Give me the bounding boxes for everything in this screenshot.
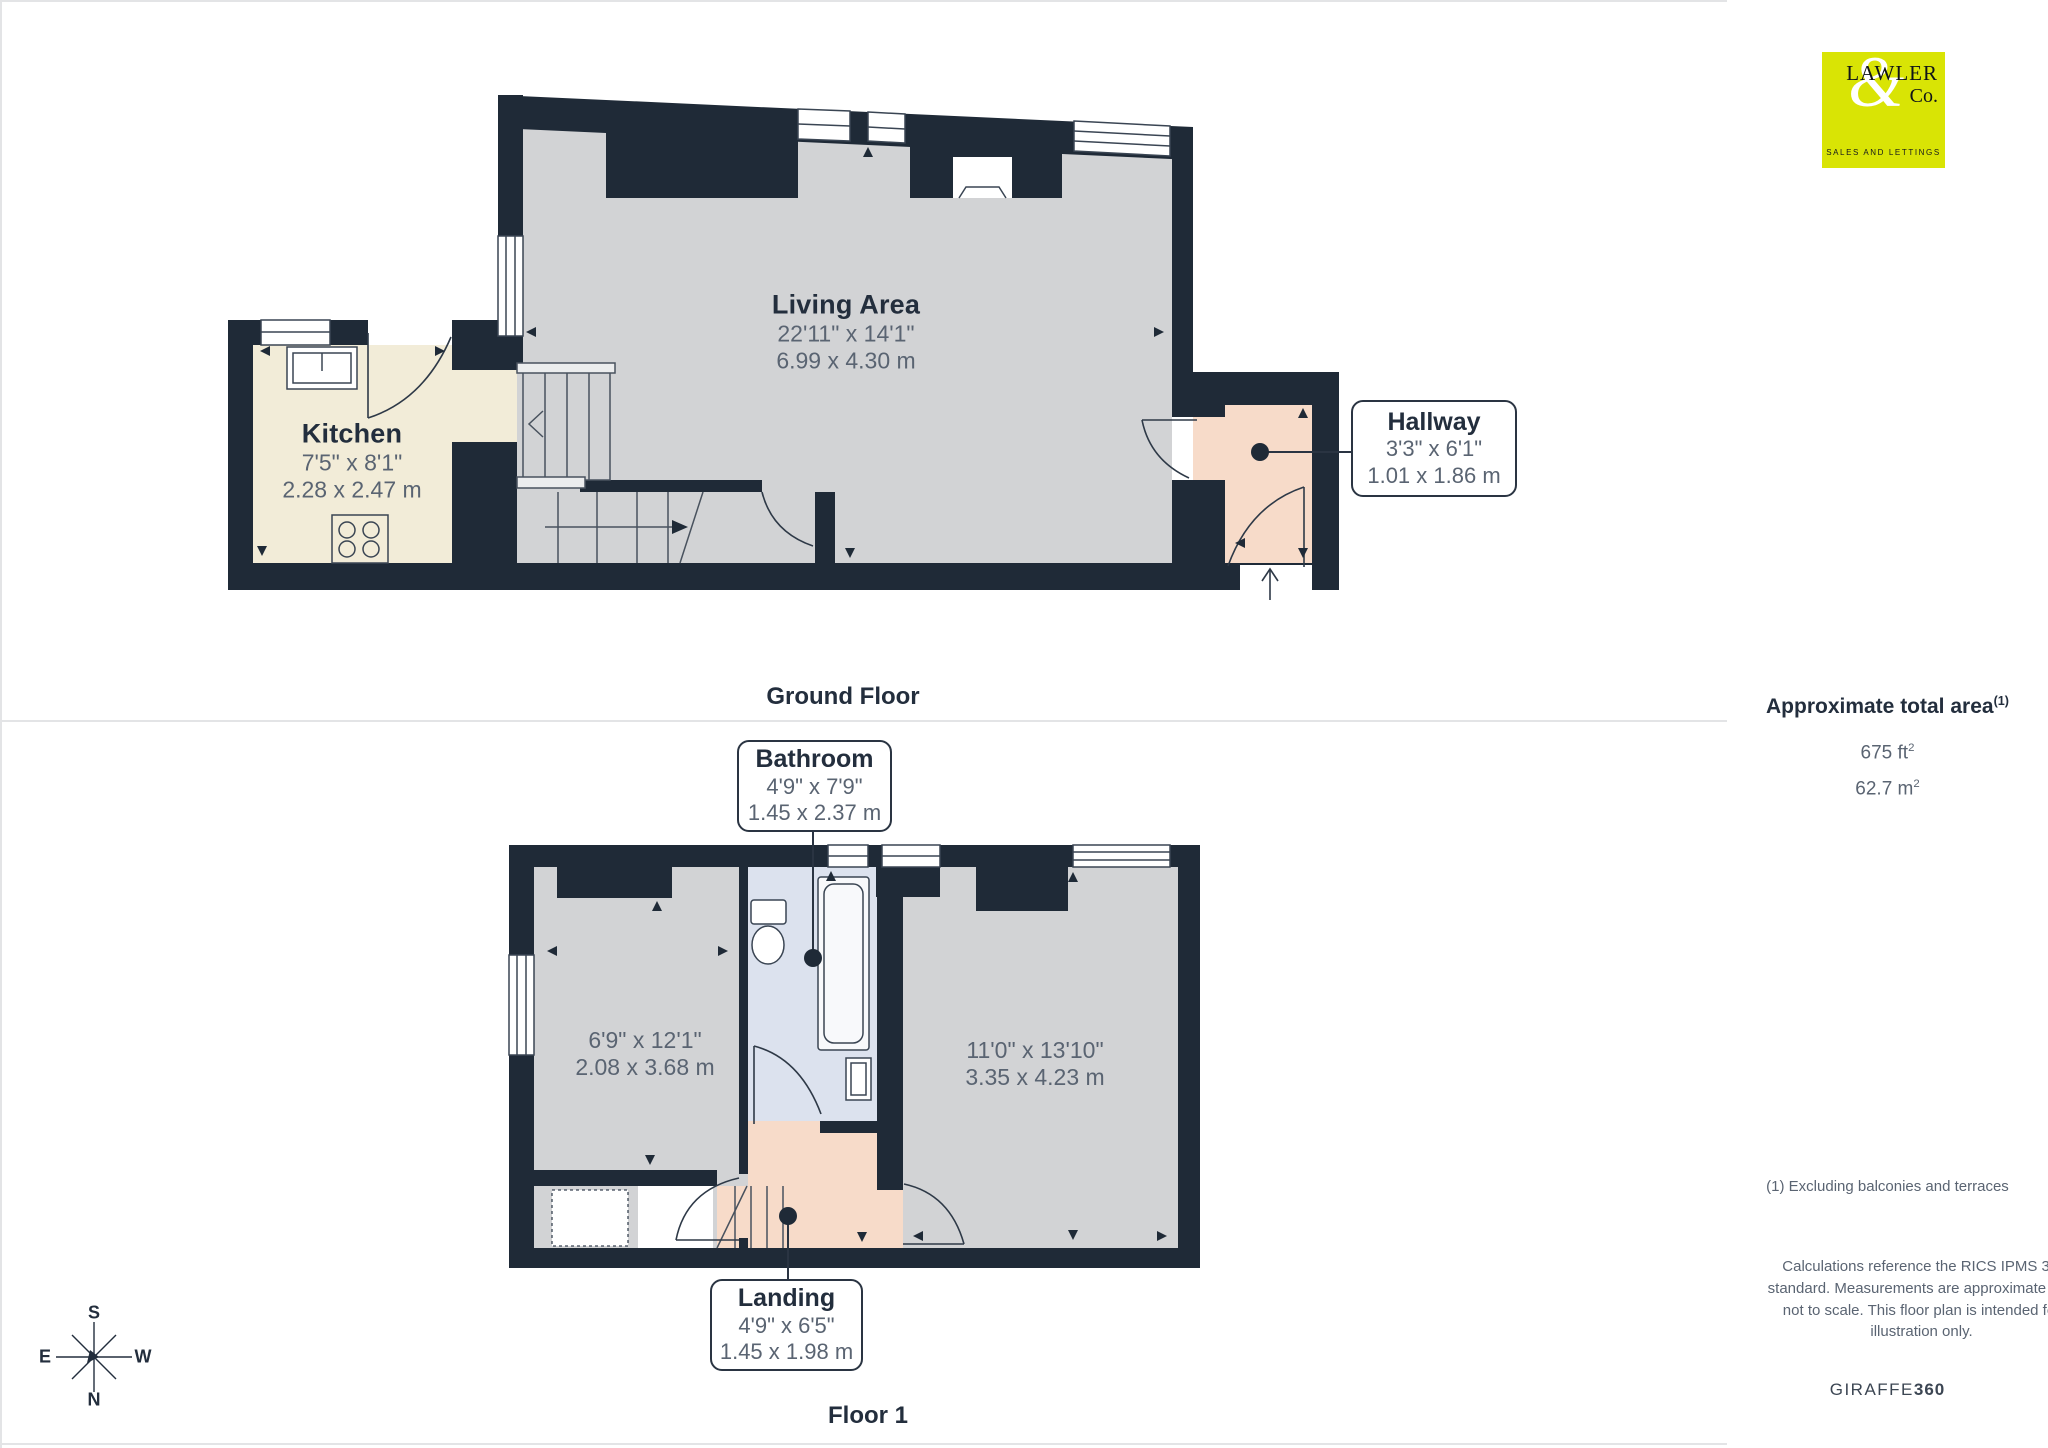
border-left — [0, 0, 2, 1448]
giraffe360-brand: GIRAFFE360 — [1727, 1380, 2048, 1400]
agency-logo: & LAWLER Co. SALES AND LETTINGS — [1822, 52, 1945, 168]
area-title-sup: (1) — [1994, 694, 2009, 708]
bedroom1-metric: 2.08 x 3.68 m — [575, 1054, 714, 1081]
divider-floors — [0, 720, 1727, 722]
sidebar: & LAWLER Co. SALES AND LETTINGS Approxim… — [1727, 0, 2048, 1448]
bathroom-title: Bathroom — [755, 745, 873, 774]
kitchen-sink-icon — [287, 347, 357, 389]
bathroom-callout: Bathroom 4'9" x 7'9" 1.45 x 2.37 m — [737, 740, 892, 832]
area-m: 62.7 m2 — [1727, 778, 2048, 800]
kitchen-label: Kitchen 7'5" x 8'1" 2.28 x 2.47 m — [282, 419, 421, 504]
ground-floor-caption: Ground Floor — [766, 683, 919, 711]
logo-tagline: SALES AND LETTINGS — [1822, 148, 1945, 157]
landing-imperial: 4'9" x 6'5" — [738, 1313, 834, 1339]
brand-regular: GIRAFFE — [1830, 1380, 1914, 1399]
disclaimer: Calculations reference the RICS IPMS 3C … — [1727, 1256, 2048, 1343]
kitchen-metric: 2.28 x 2.47 m — [282, 477, 421, 504]
bedroom2-label: 11'0" x 13'10" 3.35 x 4.23 m — [965, 1037, 1104, 1091]
compass-south: S — [88, 1303, 100, 1324]
area-footnote: (1) Excluding balconies and terraces — [1727, 1178, 2048, 1195]
compass-north: N — [88, 1390, 101, 1411]
landing-metric: 1.45 x 1.98 m — [720, 1339, 853, 1365]
area-ft: 675 ft2 — [1727, 742, 2048, 764]
landing-title: Landing — [738, 1284, 835, 1313]
area-m-value: 62.7 m — [1855, 778, 1913, 799]
bedroom2-imperial: 11'0" x 13'10" — [965, 1037, 1104, 1064]
kitchen-imperial: 7'5" x 8'1" — [282, 450, 421, 477]
fireplace-icon — [953, 157, 1012, 198]
floor1-caption: Floor 1 — [828, 1402, 908, 1430]
cupboard-icon — [552, 1190, 628, 1246]
living-area-label: Living Area 22'11" x 14'1" 6.99 x 4.30 m — [772, 290, 920, 375]
hallway-imperial: 3'3" x 6'1" — [1386, 436, 1482, 462]
area-ft-sup: 2 — [1908, 742, 1914, 754]
hallway-title: Hallway — [1387, 408, 1480, 437]
living-area-imperial: 22'11" x 14'1" — [772, 321, 920, 348]
logo-name: LAWLER — [1846, 61, 1938, 86]
floorplan-page: Living Area 22'11" x 14'1" 6.99 x 4.30 m… — [0, 0, 2048, 1448]
hallway-metric: 1.01 x 1.86 m — [1367, 463, 1500, 489]
compass-icon — [56, 1322, 132, 1392]
area-ft-value: 675 ft — [1861, 742, 1909, 763]
hallway-callout: Hallway 3'3" x 6'1" 1.01 x 1.86 m — [1351, 400, 1517, 497]
sink-icon — [846, 1058, 871, 1100]
area-m-sup: 2 — [1913, 778, 1919, 790]
living-area-metric: 6.99 x 4.30 m — [772, 348, 920, 375]
landing-callout: Landing 4'9" x 6'5" 1.45 x 1.98 m — [710, 1279, 863, 1371]
bathroom-imperial: 4'9" x 7'9" — [766, 774, 862, 800]
landing-door-gap — [877, 1190, 903, 1248]
bathtub-icon — [818, 877, 869, 1050]
bathroom-metric: 1.45 x 2.37 m — [748, 800, 881, 826]
logo-co: Co. — [1910, 85, 1938, 108]
bedroom2-metric: 3.35 x 4.23 m — [965, 1064, 1104, 1091]
kitchen-title: Kitchen — [282, 419, 421, 450]
area-title: Approximate total area(1) — [1727, 694, 2048, 719]
kitchen-stove-icon — [332, 515, 388, 563]
bedroom1-imperial: 6'9" x 12'1" — [575, 1027, 714, 1054]
brand-bold: 360 — [1914, 1380, 1945, 1399]
living-area-title: Living Area — [772, 290, 920, 321]
bedroom1-label: 6'9" x 12'1" 2.08 x 3.68 m — [575, 1027, 714, 1081]
compass-west: W — [135, 1347, 152, 1368]
compass-east: E — [39, 1347, 51, 1368]
area-title-text: Approximate total area — [1766, 695, 1994, 718]
